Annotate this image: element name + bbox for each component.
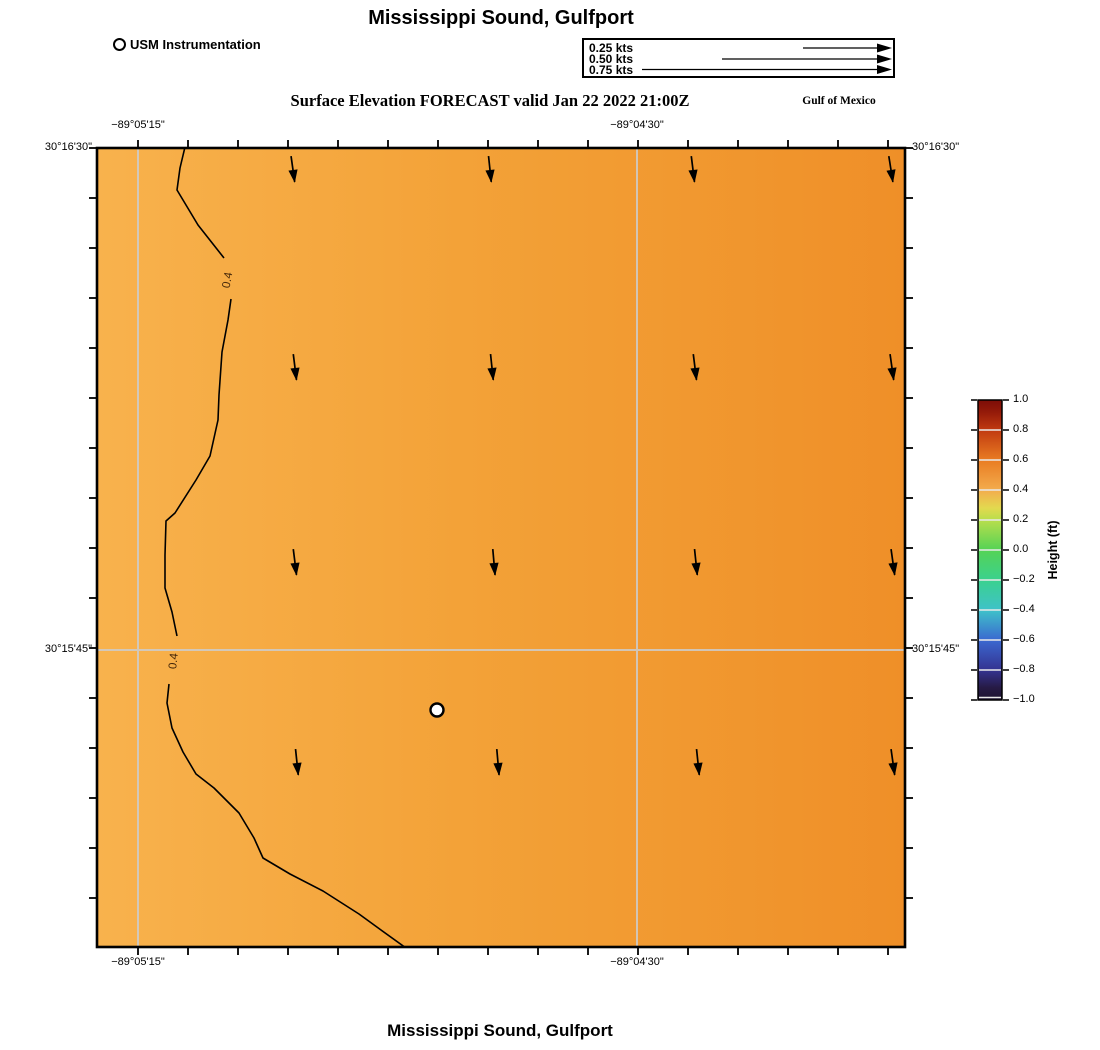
colorbar-tick-label: 0.8	[1013, 423, 1053, 435]
plot-title-bottom: Mississippi Sound, Gulfport	[150, 1021, 850, 1041]
station-legend-icon	[113, 38, 126, 51]
forecast-subtitle: Surface Elevation FORECAST valid Jan 22 …	[90, 91, 890, 111]
lat-tick-label-left: 30°15'45"	[18, 643, 92, 655]
plot-canvas: 0.4 0.4	[0, 0, 1100, 1050]
station-legend-label: USM Instrumentation	[130, 37, 261, 52]
colorbar-tick-label: 0.6	[1013, 453, 1053, 465]
lon-tick-label-top: −89°04'30"	[577, 119, 697, 131]
plot-title-top: Mississippi Sound, Gulfport	[151, 7, 851, 30]
colorbar-tick-label: −0.6	[1013, 633, 1053, 645]
lat-tick-label-right: 30°15'45"	[912, 643, 992, 655]
lat-tick-label-left: 30°16'30"	[18, 141, 92, 153]
contour-label: 0.4	[167, 652, 181, 670]
colorbar-tick-label: −1.0	[1013, 693, 1053, 705]
colorbar-tick-label: 1.0	[1013, 393, 1053, 405]
speed-scale-arrows	[584, 40, 893, 76]
lon-tick-label-top: −89°05'15"	[78, 119, 198, 131]
region-label: Gulf of Mexico	[779, 95, 899, 107]
colorbar-tick-label: 0.4	[1013, 483, 1053, 495]
lon-tick-label-bottom: −89°04'30"	[577, 956, 697, 968]
lat-tick-label-right: 30°16'30"	[912, 141, 992, 153]
colorbar-tick-label: −0.8	[1013, 663, 1053, 675]
elevation-field	[97, 148, 905, 947]
velocity-scale-legend: 0.25 kts 0.50 kts 0.75 kts	[582, 38, 895, 78]
lon-tick-label-bottom: −89°05'15"	[78, 956, 198, 968]
colorbar-axis-title: Height (ft)	[1046, 510, 1060, 590]
usm-station-marker	[431, 704, 444, 717]
forecast-plot-page: 0.4 0.4	[0, 0, 1100, 1050]
colorbar-tick-label: −0.4	[1013, 603, 1053, 615]
